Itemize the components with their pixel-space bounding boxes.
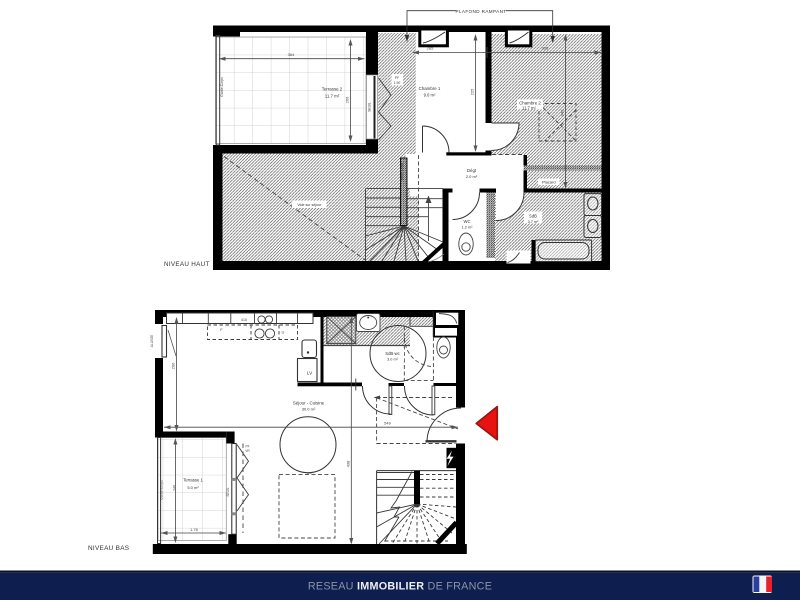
svg-text:Garde-Corps: Garde-Corps <box>400 162 404 181</box>
svg-text:5.0 m²: 5.0 m² <box>187 485 199 490</box>
svg-text:266: 266 <box>345 96 350 103</box>
svg-text:305: 305 <box>542 46 549 51</box>
svg-text:9.0 m²: 9.0 m² <box>424 93 436 98</box>
svg-text:Placard: Placard <box>542 180 556 185</box>
svg-text:Terrasse 2: Terrasse 2 <box>322 87 343 92</box>
svg-text:PF: PF <box>395 76 399 80</box>
svg-text:225: 225 <box>470 88 475 95</box>
svg-text:11.7 m²: 11.7 m² <box>325 94 340 99</box>
svg-text:415: 415 <box>241 318 247 322</box>
svg-text:206: 206 <box>171 362 176 369</box>
svg-text:Garde-Corps: Garde-Corps <box>160 480 164 500</box>
svg-text:SdB: SdB <box>529 214 537 219</box>
svg-text:U: U <box>282 330 285 335</box>
svg-text:11.7 m²: 11.7 m² <box>522 106 536 111</box>
svg-text:Chambre 1: Chambre 1 <box>419 86 441 91</box>
svg-text:PF: PF <box>245 445 249 449</box>
svg-text:Vide sur séjour: Vide sur séjour <box>297 203 322 207</box>
svg-text:SEUIL: SEUIL <box>368 102 372 112</box>
svg-text:2.0 m²: 2.0 m² <box>466 174 478 179</box>
svg-text:RESEAU IMMOBILIER DE FRANCE: RESEAU IMMOBILIER DE FRANCE <box>308 581 492 593</box>
svg-text:285: 285 <box>427 46 434 51</box>
svg-text:PLAFOND RAMPANT: PLAFOND RAMPANT <box>455 9 506 14</box>
svg-text:1.2 m²: 1.2 m² <box>462 226 473 230</box>
svg-text:549: 549 <box>384 421 391 426</box>
svg-text:SEUIL: SEUIL <box>226 487 230 496</box>
svg-text:Séjour - Cuisine: Séjour - Cuisine <box>293 401 325 406</box>
svg-text:VR: VR <box>245 449 250 453</box>
svg-text:ALLEGE: ALLEGE <box>150 335 154 347</box>
svg-text:438: 438 <box>346 460 351 467</box>
svg-text:SdB-wc: SdB-wc <box>385 351 399 356</box>
svg-text:30.0 m²: 30.0 m² <box>302 407 316 412</box>
svg-text:3.7 m²: 3.7 m² <box>528 220 539 224</box>
svg-text:Terrasse 1: Terrasse 1 <box>183 478 203 483</box>
svg-text:Garde-Corps: Garde-Corps <box>220 77 224 97</box>
svg-text:1.90: 1.90 <box>394 81 401 85</box>
svg-text:NIVEAU HAUT: NIVEAU HAUT <box>164 261 210 268</box>
svg-text:NIVEAU BAS: NIVEAU BAS <box>88 545 129 552</box>
svg-text:340: 340 <box>560 109 565 116</box>
svg-text:Dégt: Dégt <box>467 168 477 173</box>
svg-text:WC: WC <box>464 219 471 224</box>
svg-text:1.78: 1.78 <box>190 528 197 532</box>
svg-text:240: 240 <box>173 485 177 491</box>
svg-text:364: 364 <box>288 52 295 57</box>
svg-text:3.0 m²: 3.0 m² <box>387 358 398 362</box>
